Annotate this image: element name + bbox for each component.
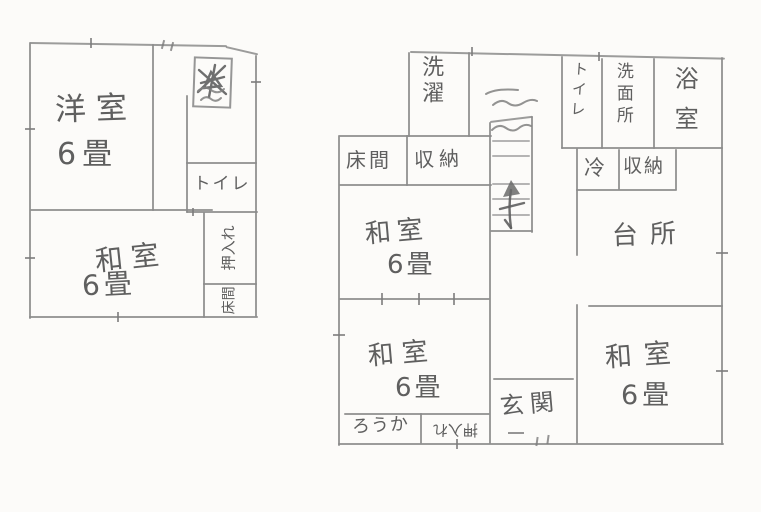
wall xyxy=(576,148,578,256)
wall xyxy=(338,135,340,446)
wall xyxy=(561,56,563,149)
room-label-alcove: 床間 xyxy=(346,150,392,171)
wall xyxy=(576,304,578,444)
room-size-japanese-lower: 6畳 xyxy=(395,375,444,402)
room-label-entrance: 玄関 xyxy=(499,389,561,419)
scribble-icon xyxy=(196,60,228,100)
wall xyxy=(489,122,491,444)
room-label-closet: 押入れ xyxy=(421,414,490,444)
wall xyxy=(152,44,154,211)
room-label-toilet: トイレ xyxy=(568,61,588,122)
floor-plan-sketch: 洋室 6畳 トイレ 和室 6畳 押入れ 床間 xyxy=(0,0,761,512)
room-label-bathroom: 浴室 xyxy=(671,66,696,146)
tick-mark xyxy=(25,257,35,259)
room-label-japanese-lower: 和室 xyxy=(367,338,437,371)
tick-mark xyxy=(25,128,35,130)
wall xyxy=(490,116,533,123)
entrance-step-mark xyxy=(508,432,524,434)
tick-mark xyxy=(333,334,345,336)
wave-mark-icon xyxy=(197,86,225,94)
room-label-storage-kitchen: 収納 xyxy=(623,157,665,177)
tick-mark xyxy=(716,370,728,372)
room-label-refrigerator: 冷 xyxy=(584,157,605,179)
wall xyxy=(29,42,31,319)
wall xyxy=(490,230,533,232)
wall xyxy=(468,52,470,137)
wall xyxy=(675,149,677,190)
wall xyxy=(30,42,227,47)
wall xyxy=(338,443,724,445)
room-size-japanese-right: 6畳 xyxy=(621,382,673,410)
tick-mark xyxy=(598,52,600,61)
room-label-storage-upper: 収納 xyxy=(414,148,465,171)
room-label-kitchen: 台所 xyxy=(612,221,689,251)
wave-mark-icon xyxy=(200,96,222,103)
room-label-laundry: 洗濯 xyxy=(419,55,442,107)
wall xyxy=(618,149,620,190)
wall xyxy=(339,184,492,186)
wall xyxy=(226,46,259,55)
room-size-japanese: 6畳 xyxy=(81,269,136,301)
wall xyxy=(493,378,574,380)
tick-mark xyxy=(471,47,473,56)
tick-mark xyxy=(418,293,420,305)
wall xyxy=(576,189,677,191)
tick-mark xyxy=(716,252,728,254)
room-label-alcove: 床間 xyxy=(203,283,257,317)
wall xyxy=(410,51,725,60)
room-label-japanese-center: 和室 xyxy=(364,216,430,249)
wall xyxy=(653,58,655,149)
wall xyxy=(588,305,723,307)
stair-break-icon xyxy=(491,124,532,134)
tick-mark xyxy=(381,293,383,305)
stair-up-arrow-icon xyxy=(497,178,527,230)
wall xyxy=(186,162,257,164)
room-label-washroom: 洗面所 xyxy=(613,62,631,128)
stair-step xyxy=(492,155,530,157)
wall xyxy=(601,58,603,149)
wall xyxy=(339,298,490,300)
tick-mark xyxy=(117,312,119,322)
room-label-corridor: ろうか xyxy=(352,416,410,438)
tick-mark xyxy=(251,81,261,83)
tick-mark xyxy=(192,208,194,216)
room-label-western: 洋室 xyxy=(54,92,137,127)
tick-mark xyxy=(453,293,455,305)
stair-step xyxy=(492,140,530,142)
wall xyxy=(561,147,723,149)
hall-wave-icon xyxy=(485,88,519,96)
room-label-closet: 押入れ xyxy=(203,212,257,284)
tick-mark xyxy=(90,38,92,48)
room-label-toilet: トイレ xyxy=(189,176,255,194)
wall xyxy=(408,52,410,137)
hall-wave-icon xyxy=(492,99,538,108)
room-size-western: 6畳 xyxy=(57,139,118,171)
room-label-japanese-right: 和室 xyxy=(604,339,684,373)
wall xyxy=(721,57,723,445)
wall xyxy=(406,135,408,186)
room-size-japanese-center: 6畳 xyxy=(387,252,436,279)
wall xyxy=(186,95,188,213)
